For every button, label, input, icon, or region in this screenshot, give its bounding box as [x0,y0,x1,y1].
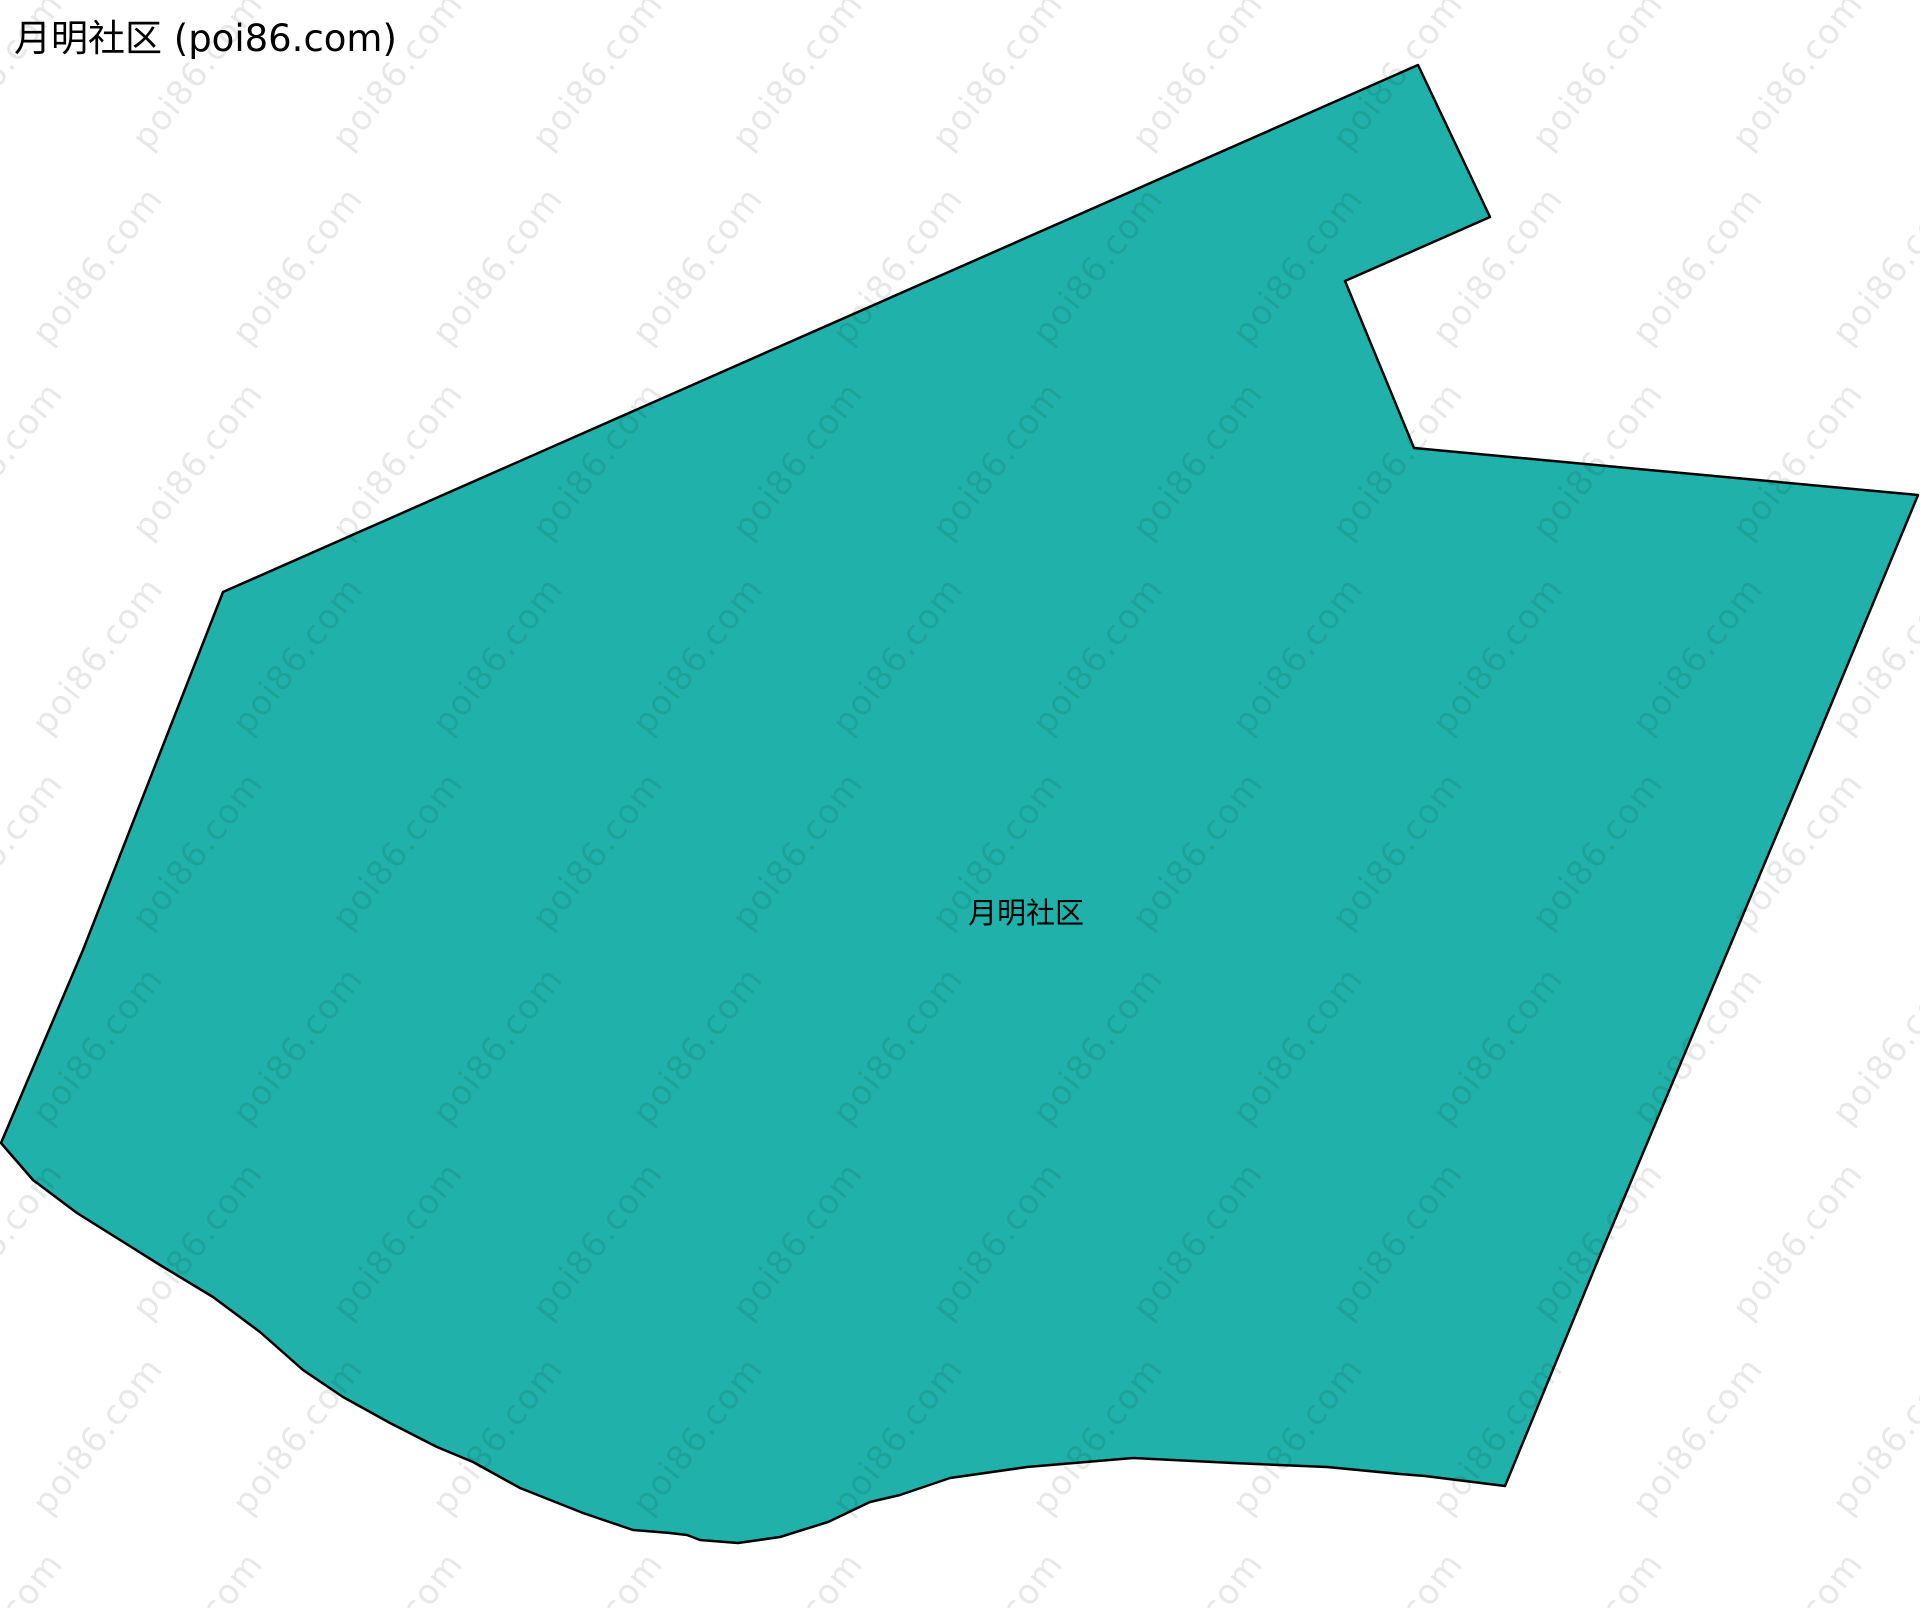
region-label: 月明社区 [968,890,1084,932]
boundary-map-svg [0,0,1920,1608]
page-title: 月明社区 (poi86.com) [14,8,397,62]
map-canvas: poi86.compoi86.compoi86.compoi86.compoi8… [0,0,1920,1608]
region-polygon [1,65,1918,1543]
